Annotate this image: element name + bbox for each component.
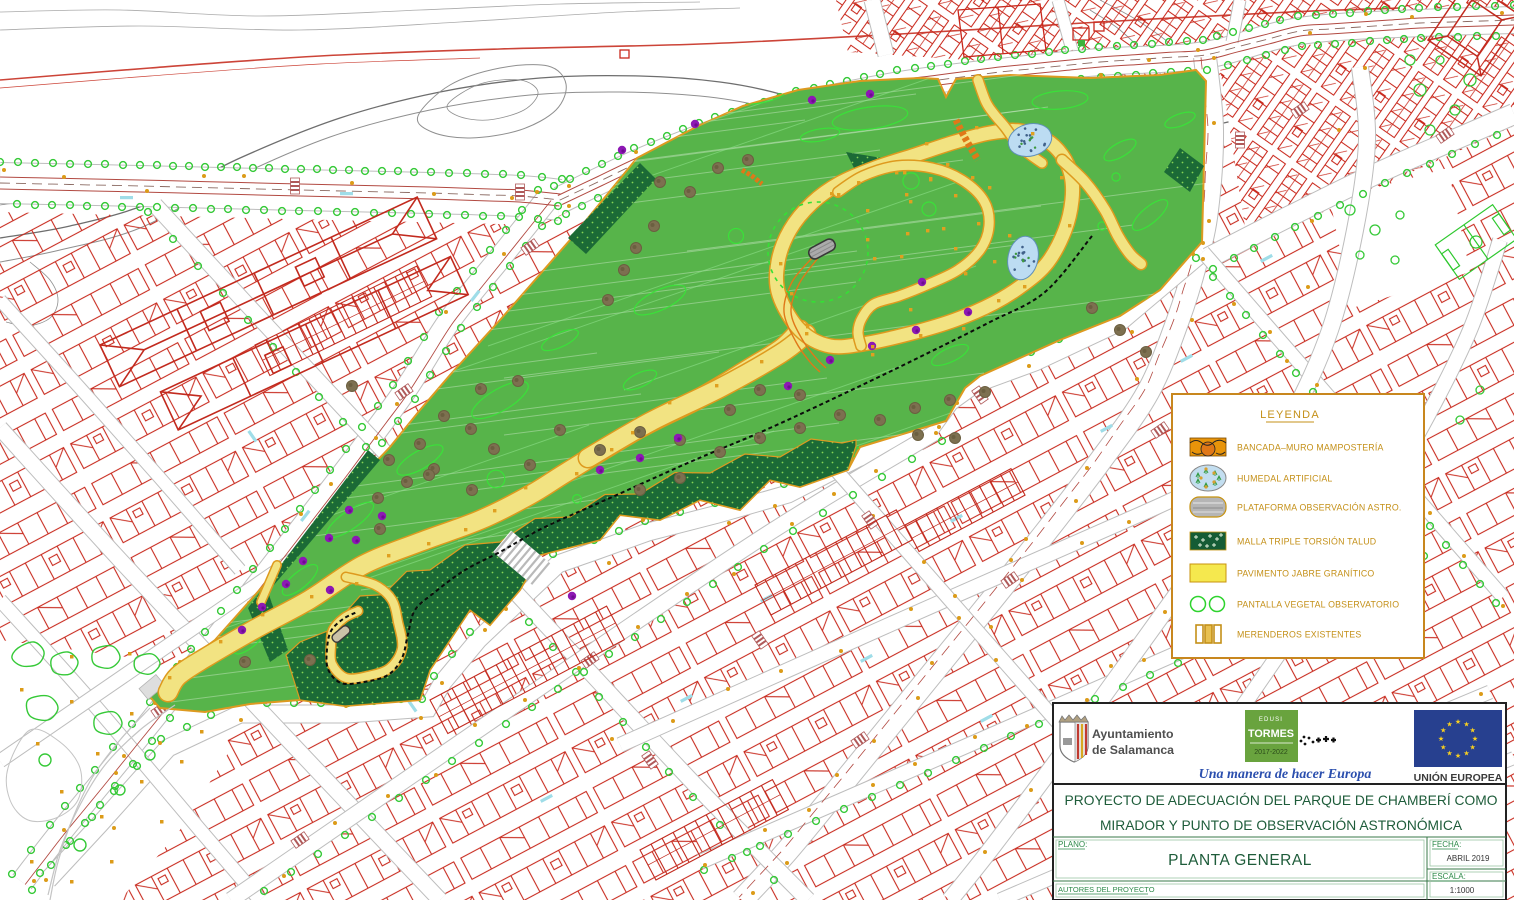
svg-text:PROYECTO DE ADECUACIÓN DEL PAR: PROYECTO DE ADECUACIÓN DEL PARQUE DE CHA… [1065, 792, 1498, 808]
svg-text:★: ★ [1455, 718, 1461, 726]
svg-text:UNIÓN EUROPEA: UNIÓN EUROPEA [1414, 771, 1503, 784]
svg-text:PLANTA GENERAL: PLANTA GENERAL [1168, 852, 1312, 869]
svg-text:1:1000: 1:1000 [1450, 886, 1475, 895]
svg-text:de Salamanca: de Salamanca [1092, 743, 1174, 757]
svg-text:PANTALLA VEGETAL OBSERVATORI: PANTALLA VEGETAL OBSERVATORIO [1237, 600, 1399, 610]
svg-text:★: ★ [1446, 720, 1452, 728]
svg-text:HUMEDAL ARTIFICIAL: HUMEDAL ARTIFICIAL [1237, 474, 1333, 484]
svg-text:MALLA TRIPLE TORSIÓN TALUD: MALLA TRIPLE TORSIÓN TALUD [1237, 537, 1376, 547]
svg-text:★: ★ [1446, 750, 1452, 758]
svg-text:LEYENDA: LEYENDA [1260, 409, 1320, 421]
svg-text:★: ★ [1455, 752, 1461, 760]
svg-text:2017-2022: 2017-2022 [1254, 749, 1288, 756]
svg-text:★: ★ [1470, 744, 1476, 752]
svg-text:★: ★ [1470, 727, 1476, 735]
svg-text:ESCALA:: ESCALA: [1432, 872, 1466, 881]
svg-text:TORMES: TORMES [1248, 728, 1294, 740]
svg-text:Ayuntamiento: Ayuntamiento [1092, 727, 1174, 741]
svg-text:EDUSI: EDUSI [1259, 717, 1283, 723]
svg-text:★: ★ [1472, 735, 1478, 743]
svg-text:PLATAFORMA OBSERVACIÓN ASTRO: PLATAFORMA OBSERVACIÓN ASTRO. [1237, 503, 1402, 513]
svg-text:★: ★ [1438, 735, 1444, 743]
svg-text:Una manera de hacer Europa: Una manera de hacer Europa [1199, 767, 1372, 782]
svg-text:AUTORES DEL PROYECTO: AUTORES DEL PROYECTO [1058, 885, 1155, 894]
svg-text:BANCADA–MURO MAMPOSTERÍA: BANCADA–MURO MAMPOSTERÍA [1237, 443, 1384, 453]
svg-text:FECHA:: FECHA: [1432, 840, 1461, 849]
svg-text:MIRADOR Y PUNTO DE OBSERVACIÓN: MIRADOR Y PUNTO DE OBSERVACIÓN ASTRONÓMI… [1100, 817, 1463, 833]
svg-text:PLANO:: PLANO: [1058, 840, 1087, 849]
svg-text:ABRIL 2019: ABRIL 2019 [1447, 854, 1490, 863]
svg-text:★: ★ [1463, 750, 1469, 758]
svg-text:MERENDEROS EXISTENTES: MERENDEROS EXISTENTES [1237, 630, 1361, 640]
svg-text:★: ★ [1440, 744, 1446, 752]
svg-text:PAVIMENTO JABRE GRANÍTICO: PAVIMENTO JABRE GRANÍTICO [1237, 569, 1374, 579]
